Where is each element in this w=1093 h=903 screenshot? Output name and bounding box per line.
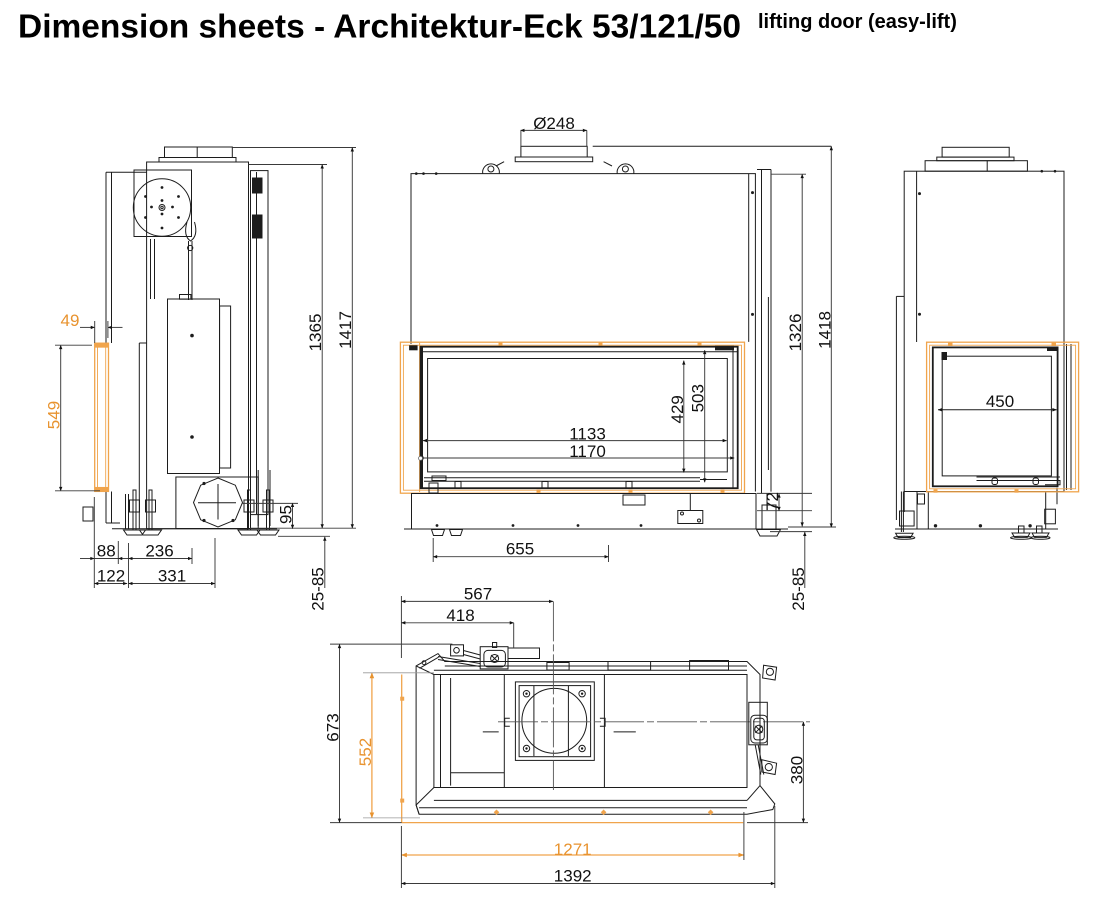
svg-text:122: 122 [97, 567, 125, 586]
svg-text:1271: 1271 [554, 840, 592, 859]
svg-text:72: 72 [763, 492, 782, 511]
svg-text:Dimension sheets - Architektur: Dimension sheets - Architektur-Eck 53/12… [18, 9, 741, 46]
svg-text:549: 549 [45, 401, 64, 429]
svg-text:503: 503 [689, 384, 708, 412]
svg-text:1326: 1326 [786, 314, 805, 352]
svg-text:1392: 1392 [554, 867, 592, 886]
svg-text:673: 673 [324, 713, 343, 741]
svg-text:429: 429 [668, 395, 687, 423]
svg-text:552: 552 [356, 738, 375, 766]
svg-text:95: 95 [276, 505, 295, 524]
svg-text:25-85: 25-85 [309, 567, 328, 610]
svg-text:1170: 1170 [569, 442, 606, 461]
svg-text:236: 236 [145, 542, 173, 561]
svg-text:lifting door (easy-lift): lifting door (easy-lift) [758, 11, 957, 33]
svg-text:1417: 1417 [336, 311, 355, 349]
svg-text:1418: 1418 [815, 311, 834, 349]
svg-text:418: 418 [446, 606, 474, 625]
svg-text:25-85: 25-85 [789, 567, 808, 610]
svg-text:380: 380 [787, 756, 806, 784]
svg-text:1365: 1365 [306, 314, 325, 352]
svg-text:567: 567 [464, 585, 492, 604]
svg-text:88: 88 [97, 542, 116, 561]
svg-text:Ø248: Ø248 [533, 114, 575, 133]
svg-text:450: 450 [986, 392, 1014, 411]
svg-text:331: 331 [158, 567, 186, 586]
svg-text:1133: 1133 [569, 424, 606, 443]
svg-text:655: 655 [506, 540, 534, 559]
svg-text:49: 49 [61, 311, 80, 330]
